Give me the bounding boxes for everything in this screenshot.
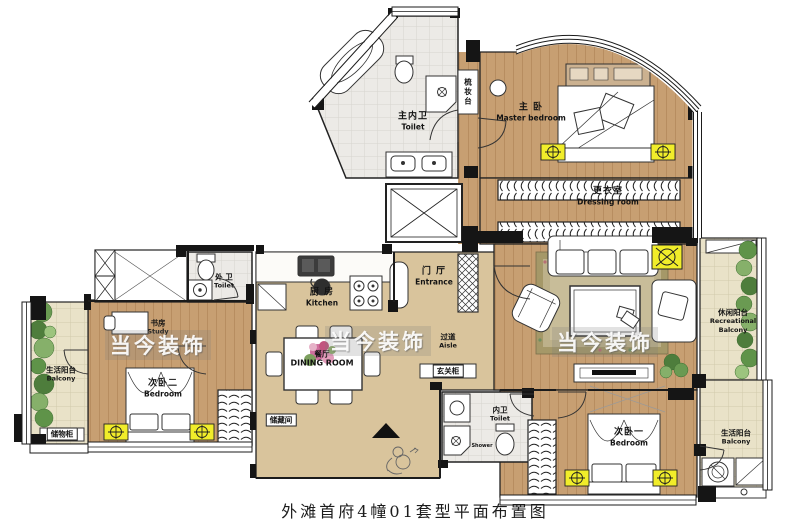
watermark: 当今装饰 [552, 327, 658, 357]
watermark: 当今装饰 [105, 330, 211, 360]
label-vanity: 梳妆台 [463, 78, 474, 107]
label-shower: Shower [471, 443, 492, 449]
label-entry-cabinet: 玄关柜 [433, 365, 464, 378]
floor-plan-canvas: 主 卧 Master bedroom 梳妆台 主内卫 Toilet 更衣室 Dr… [0, 0, 805, 531]
plan-caption: 外滩首府4幢01套型平面布置图 [281, 498, 549, 522]
watermark: 当今装饰 [325, 326, 431, 356]
label-storage-cabinet: 储物柜 [47, 428, 78, 441]
floor-plan-drawing [0, 0, 805, 531]
master-bedroom-furniture [558, 64, 654, 162]
bedroom-one-furniture [588, 414, 660, 494]
label-storage-room: 储藏间 [266, 414, 297, 427]
